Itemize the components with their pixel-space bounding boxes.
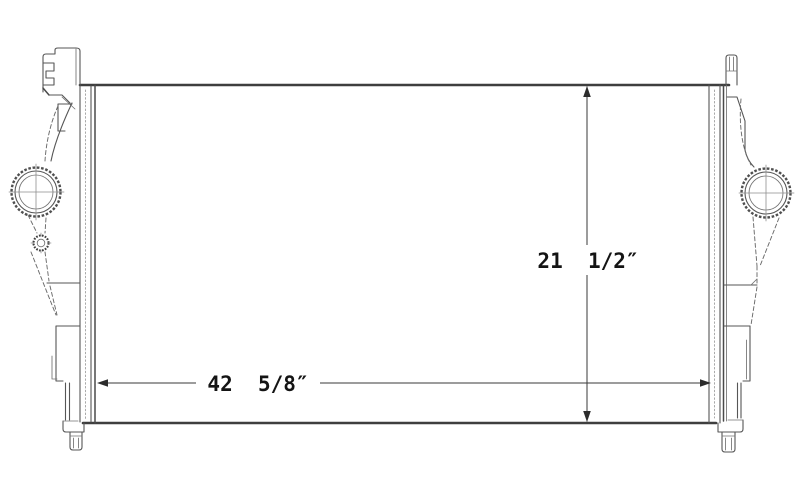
right-mounting-pin bbox=[722, 432, 735, 452]
height-arrow-up bbox=[583, 86, 591, 97]
right-tank bbox=[718, 55, 794, 452]
left-top-bracket bbox=[43, 48, 80, 131]
right-top-pin bbox=[726, 55, 737, 85]
left-tank bbox=[9, 48, 84, 450]
left-port-centerlines bbox=[9, 164, 64, 220]
left-lower-profile bbox=[28, 215, 80, 420]
right-upper-profile-inner bbox=[740, 99, 751, 165]
left-foot bbox=[63, 421, 84, 432]
width-arrow-left bbox=[97, 379, 108, 387]
height-arrow-down bbox=[583, 411, 591, 422]
width-dimension: 42 5/8″ bbox=[97, 367, 711, 399]
height-dimension-label: 21 1/2″ bbox=[537, 249, 638, 273]
left-bolt bbox=[31, 233, 51, 253]
left-side-channel bbox=[80, 85, 95, 423]
technical-drawing: 21 1/2″ 42 5/8″ bbox=[0, 0, 800, 496]
width-dimension-label: 42 5/8″ bbox=[207, 372, 308, 396]
left-mounting-pin bbox=[70, 432, 82, 450]
right-side-channel bbox=[709, 85, 727, 423]
left-tank-curve-inner bbox=[45, 106, 58, 161]
right-lower-profile bbox=[724, 217, 779, 418]
right-port-centerlines bbox=[739, 165, 794, 221]
right-outlet-port bbox=[739, 165, 794, 221]
drawing-canvas: 21 1/2″ 42 5/8″ bbox=[0, 0, 800, 496]
left-inlet-port bbox=[9, 164, 64, 220]
left-tank-curve bbox=[51, 103, 72, 161]
height-dimension: 21 1/2″ bbox=[534, 86, 642, 422]
right-foot bbox=[718, 420, 743, 432]
